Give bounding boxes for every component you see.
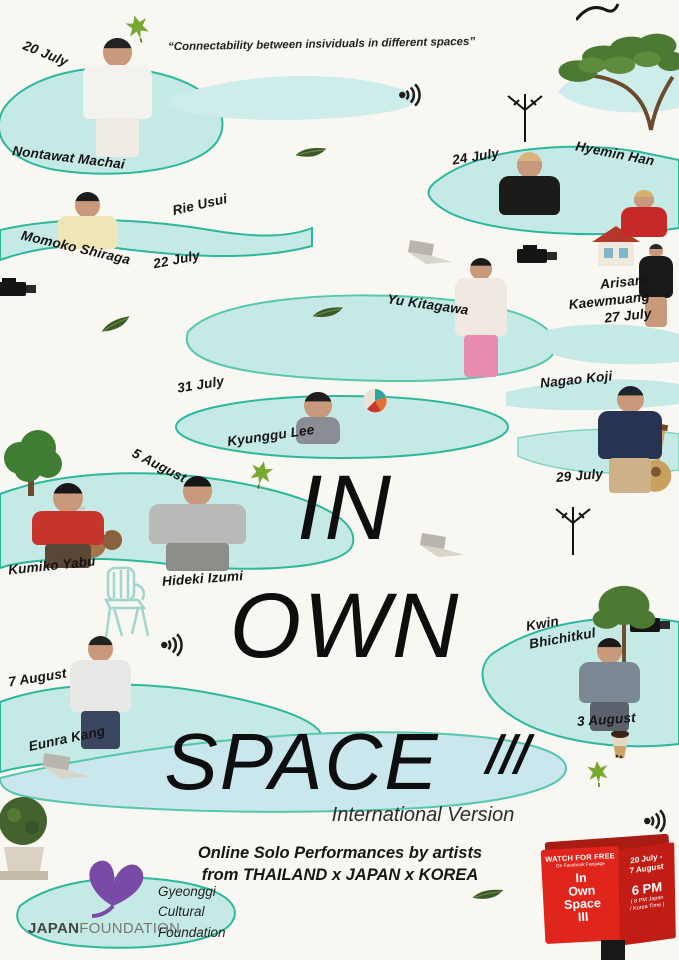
watch-box-title: In Own Space III xyxy=(544,870,621,926)
title-subtitle: International Version xyxy=(303,804,543,827)
watch-box-side: 20 July - 7 August 6 PM ( 8 PM Japan / K… xyxy=(618,842,676,946)
tv-antenna-icon xyxy=(548,505,598,555)
artist-photo-hideki-izumi xyxy=(130,476,265,571)
broadcast-signal-icon xyxy=(643,808,675,834)
artist-name-date-block: Arisara Kaewmuang 27 July xyxy=(548,272,653,333)
japan-foundation-bold: JAPAN xyxy=(28,920,79,937)
watch-box: WATCH FOR FREE On Facebook Fanpage In Ow… xyxy=(543,838,679,960)
tv-antenna-icon xyxy=(500,92,550,142)
title-word-own: OWN xyxy=(180,580,510,672)
watch-box-dates: 20 July - 7 August xyxy=(621,851,671,878)
title-numeral-iii: III xyxy=(455,726,559,784)
tree-icon xyxy=(556,14,679,132)
watch-box-post xyxy=(601,940,625,960)
artist-photo-nontawat-machai xyxy=(70,38,165,168)
broadcast-signal-icon xyxy=(398,82,430,108)
artist-photo-nagao-koji xyxy=(585,386,675,501)
poster-tagline: Online Solo Performances by artists from… xyxy=(150,842,530,887)
artist-photo-hyemin-han xyxy=(487,152,572,247)
gyeonggi-cultural-foundation-logo-text: Gyeonggi Cultural Foundation xyxy=(158,882,226,943)
garden-chair-icon xyxy=(98,566,152,642)
japan-foundation-logo-icon xyxy=(80,848,146,920)
maple-leaf-icon xyxy=(585,759,611,789)
video-camera-icon xyxy=(0,276,38,302)
title-word-in: IN xyxy=(260,462,430,554)
topiary-icon xyxy=(0,795,54,900)
poster: “Connectability between insividuals in d… xyxy=(0,0,679,960)
beach-ball-icon xyxy=(362,388,388,414)
artist-photo-yu-kitagawa xyxy=(445,258,517,398)
watch-box-front: WATCH FOR FREE On Facebook Fanpage In Ow… xyxy=(541,846,624,944)
title-word-space: SPACE xyxy=(152,722,452,802)
